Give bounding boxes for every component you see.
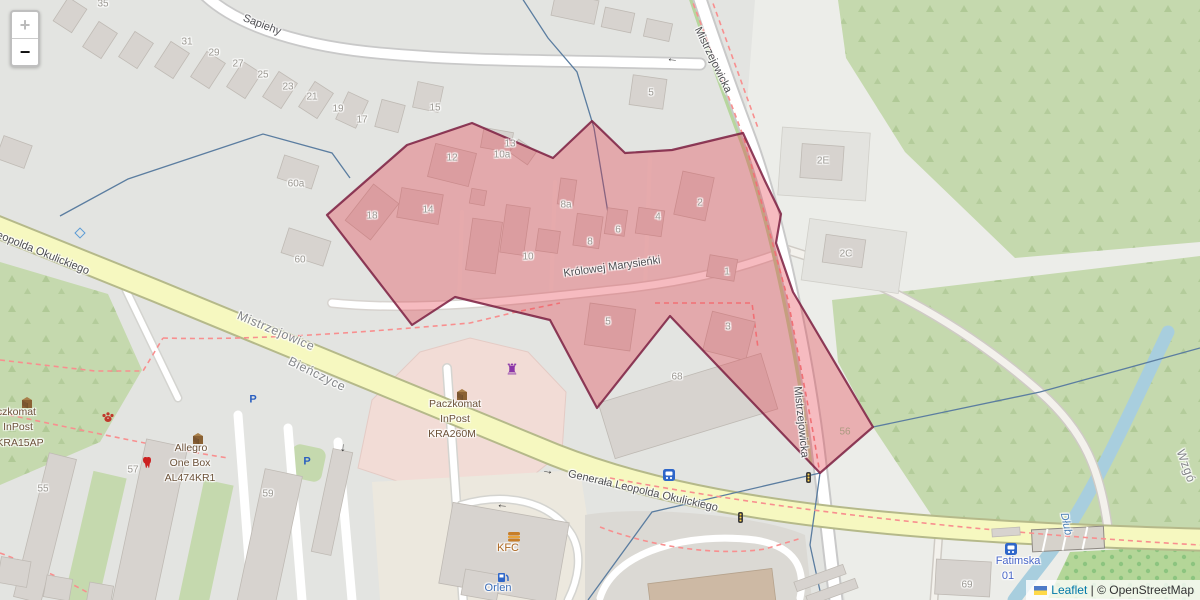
zoom-out-button[interactable]: − <box>12 39 38 65</box>
map-graphics <box>0 0 1200 600</box>
map-canvas[interactable]: SapiehyLeopolda OkulickiegoGenerała Leop… <box>0 0 1200 600</box>
attribution-bar: Leaflet | © OpenStreetMap <box>1026 580 1200 600</box>
attribution-separator: | <box>1087 583 1097 597</box>
ukraine-flag-icon <box>1034 586 1047 595</box>
leaflet-link[interactable]: Leaflet <box>1051 583 1087 597</box>
zoom-control: + − <box>10 10 40 67</box>
zoom-in-button[interactable]: + <box>12 12 38 39</box>
osm-link[interactable]: © OpenStreetMap <box>1097 583 1194 597</box>
bridge <box>1031 526 1104 552</box>
